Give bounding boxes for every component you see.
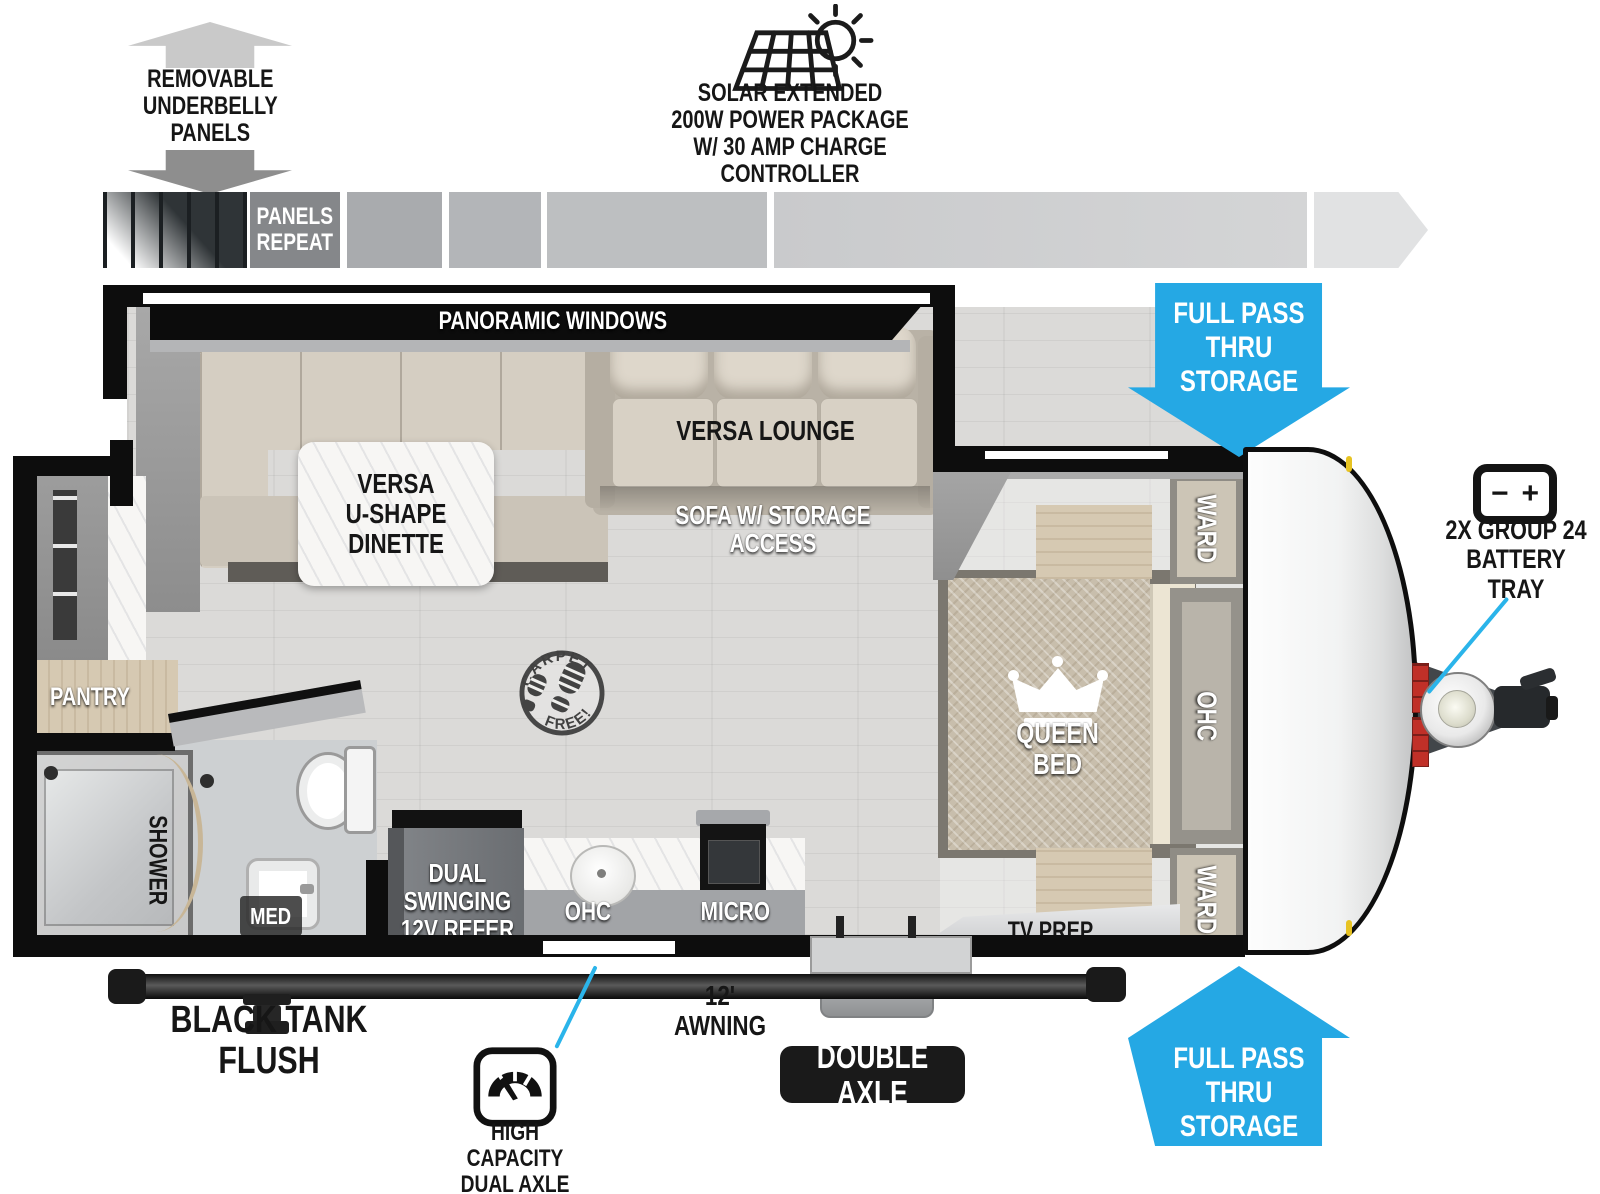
panel-segment	[347, 192, 442, 268]
wall-bath-partition	[366, 860, 388, 935]
wall-left-upper	[103, 285, 127, 399]
panels-repeat-badge: PANELS REPEAT	[250, 192, 340, 268]
queen-bed-label: QUEEN BED	[975, 732, 1140, 768]
panel-segment	[774, 192, 1307, 268]
lounge-label: VERSA LOUNGE	[640, 415, 890, 447]
ward-top-label: WARD	[1170, 474, 1243, 584]
crown-ball-icon	[1097, 670, 1108, 681]
bedroom-window-frame	[985, 451, 1168, 459]
solar-package-label: SOLAR EXTENDED 200W POWER PACKAGE W/ 30 …	[600, 92, 980, 176]
front-cap	[1243, 447, 1418, 955]
shower-drain-icon	[200, 774, 214, 788]
dinette-label: VERSA U-SHAPE DINETTE	[298, 442, 494, 586]
wall-bedroom-top	[933, 446, 1245, 472]
underbelly-down-arrow-icon	[128, 150, 292, 194]
entry-post	[836, 916, 844, 938]
black-tank-flush-label: BLACK TANK FLUSH	[109, 1020, 429, 1062]
shower-label: SHOWER	[140, 800, 174, 920]
panoramic-windows-label: PANORAMIC WINDOWS	[353, 305, 753, 337]
bottom-wall-window	[543, 941, 675, 954]
refer-label: DUAL SWINGING 12V REFER	[380, 868, 535, 934]
crown-ball-icon	[1008, 670, 1019, 681]
panel-segment	[449, 192, 541, 268]
entry-platform	[810, 936, 972, 974]
ohc-bed-label: OHC	[1170, 660, 1243, 772]
panel-segment	[547, 192, 767, 268]
nightstand-top	[1036, 505, 1152, 579]
toilet-tank	[344, 746, 376, 834]
battery-tray-label: 2X GROUP 24 BATTERY TRAY	[1425, 528, 1600, 592]
marker-light-icon	[1346, 456, 1352, 472]
wall-rear-left	[13, 456, 37, 957]
stove-screen	[708, 840, 760, 884]
crown-ball-icon	[1052, 656, 1063, 667]
window-sill	[150, 340, 910, 352]
entry-post	[908, 916, 916, 938]
panel-segment-arrow	[1314, 192, 1428, 268]
rv-floorplan-diagram: REMOVABLE UNDERBELLY PANELS SOLAR EXTEND…	[0, 0, 1600, 1194]
hitch-coupler	[1494, 686, 1550, 728]
awning-rail-cap-left	[108, 969, 146, 1004]
kitchen-ohc-label: OHC	[548, 894, 628, 928]
propane-tank-valve	[1438, 690, 1476, 728]
hitch-ball-socket	[1546, 696, 1558, 720]
underbelly-panel-image	[103, 192, 247, 268]
underbelly-label: REMOVABLE UNDERBELLY PANELS	[95, 62, 325, 150]
battery-minus-sign: −	[1491, 477, 1509, 511]
double-axle-badge: DOUBLE AXLE	[780, 1046, 965, 1103]
full-pass-thru-arrow-bottom: FULL PASS THRU STORAGE	[1128, 966, 1350, 1146]
queen-bed-mattress	[948, 578, 1150, 850]
marker-light-icon	[1346, 920, 1352, 936]
pantry-shelf-strip	[53, 490, 77, 640]
pantry-label: PANTRY	[30, 680, 150, 714]
sofa-storage-label: SOFA W/ STORAGE ACCESS	[623, 515, 923, 543]
med-cabinet-badge: MED	[240, 896, 302, 936]
sink-drain	[597, 869, 606, 878]
window-frame-top	[143, 293, 930, 304]
battery-plus-sign: +	[1521, 477, 1539, 511]
shower-head-icon	[44, 766, 58, 780]
wall-right-upper	[933, 285, 955, 472]
awning-label: 12' AWNING	[655, 993, 785, 1029]
scale-icon	[473, 1046, 557, 1128]
high-capacity-label: HIGH CAPACITY DUAL AXLE	[440, 1130, 590, 1188]
micro-label: MICRO	[690, 894, 780, 928]
bath-faucet	[300, 884, 314, 894]
wall-bath-top	[13, 733, 175, 751]
awning-rail-cap-right	[1086, 967, 1126, 1002]
